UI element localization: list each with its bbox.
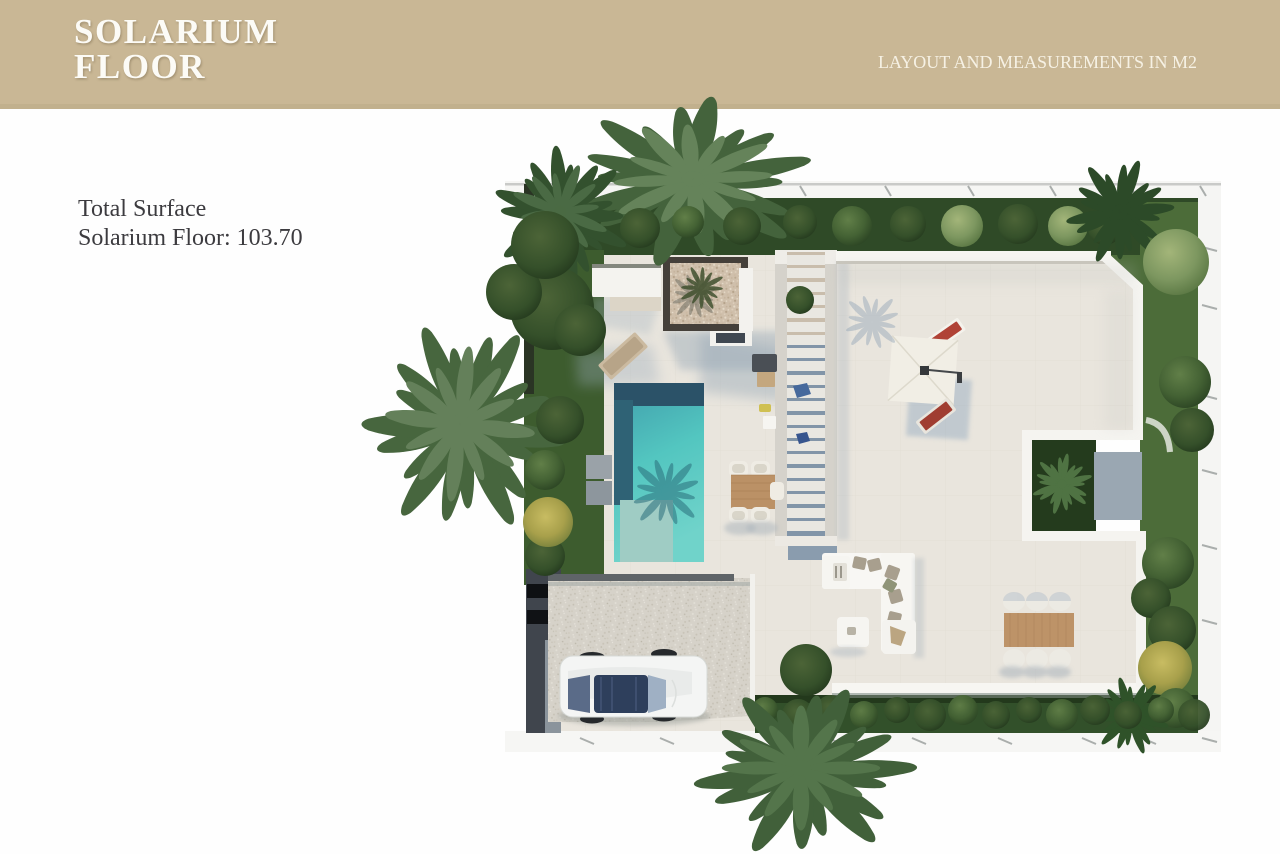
svg-text:LAYOUT AND MEASUREMENTS IN M2: LAYOUT AND MEASUREMENTS IN M2 bbox=[878, 52, 1197, 72]
svg-text:SOLARIUM: SOLARIUM bbox=[74, 12, 279, 51]
svg-text:Solarium Floor: 103.70: Solarium Floor: 103.70 bbox=[78, 225, 303, 251]
svg-text:FLOOR: FLOOR bbox=[74, 47, 206, 86]
svg-text:Total Surface: Total Surface bbox=[78, 196, 206, 222]
